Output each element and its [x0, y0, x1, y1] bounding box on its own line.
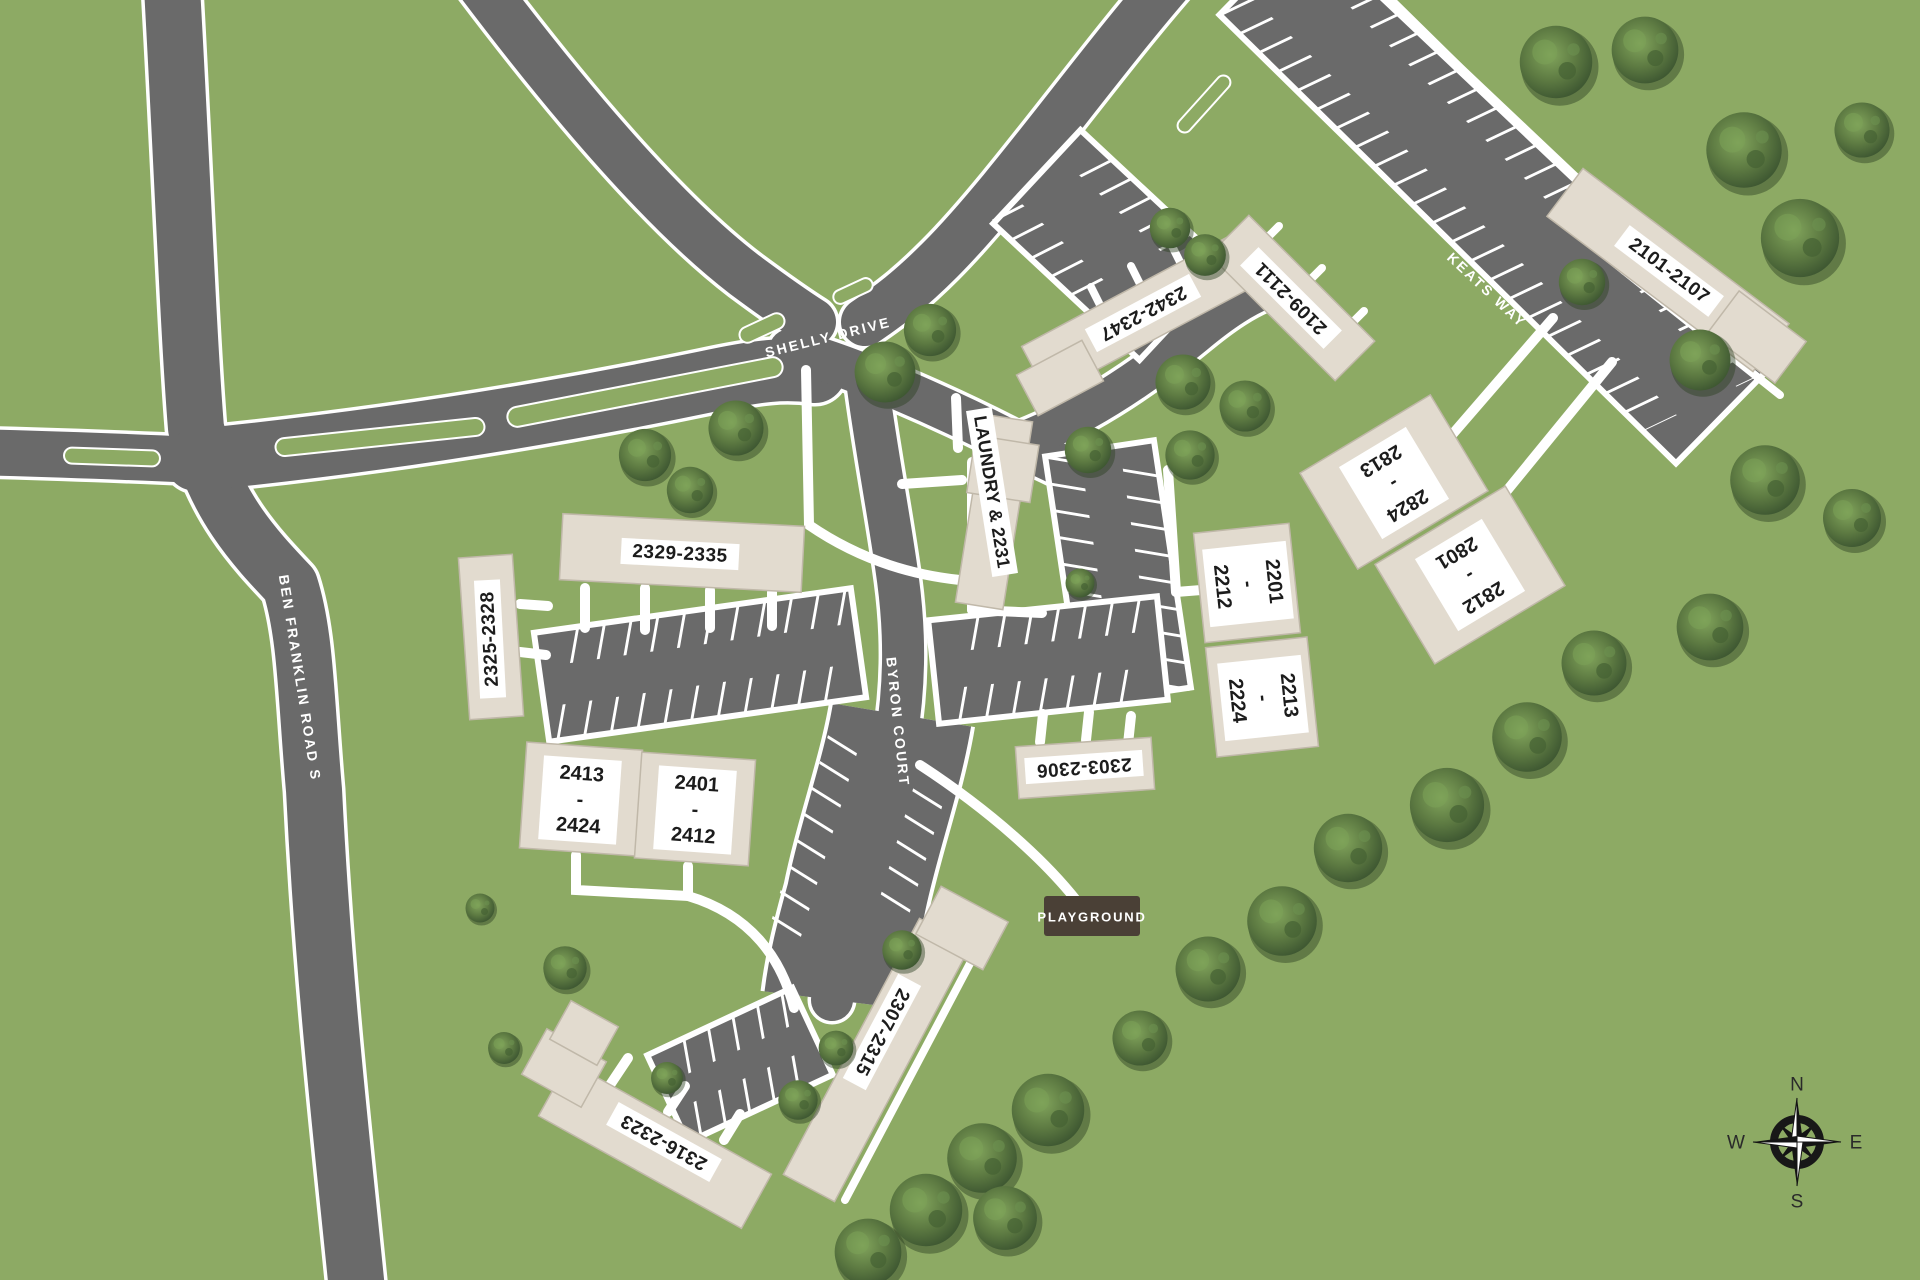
- building-label-2213-2224: 2213-2224: [1217, 655, 1309, 741]
- compass-west-label: W: [1727, 1133, 1745, 1154]
- compass-north-label: N: [1790, 1075, 1804, 1096]
- parking-lot-mid-east: [927, 596, 1169, 724]
- building-label-2413-2424: 2413-2424: [538, 755, 622, 844]
- sidewalk: [956, 398, 958, 448]
- median-island: [64, 447, 160, 466]
- playground-label: PLAYGROUND: [1037, 896, 1146, 936]
- sidewalk: [1086, 712, 1089, 740]
- sidewalk: [1040, 714, 1043, 742]
- building-label-2401-2412: 2401-2412: [653, 765, 737, 854]
- playground-text: PLAYGROUND: [1037, 910, 1146, 925]
- site-map-page: 2329-2335 2325-2328 2413-2424 2401-2412 …: [0, 0, 1920, 1280]
- sidewalk: [902, 480, 962, 484]
- sidewalk: [520, 652, 546, 655]
- site-map: 2329-2335 2325-2328 2413-2424 2401-2412 …: [0, 0, 1920, 1280]
- compass-south-label: S: [1791, 1192, 1804, 1213]
- building-label-2201-2212: 2201-2212: [1202, 541, 1294, 627]
- sidewalk: [520, 604, 548, 606]
- sidewalk: [806, 370, 809, 525]
- compass-east-label: E: [1850, 1133, 1863, 1154]
- sidewalk: [972, 610, 1042, 613]
